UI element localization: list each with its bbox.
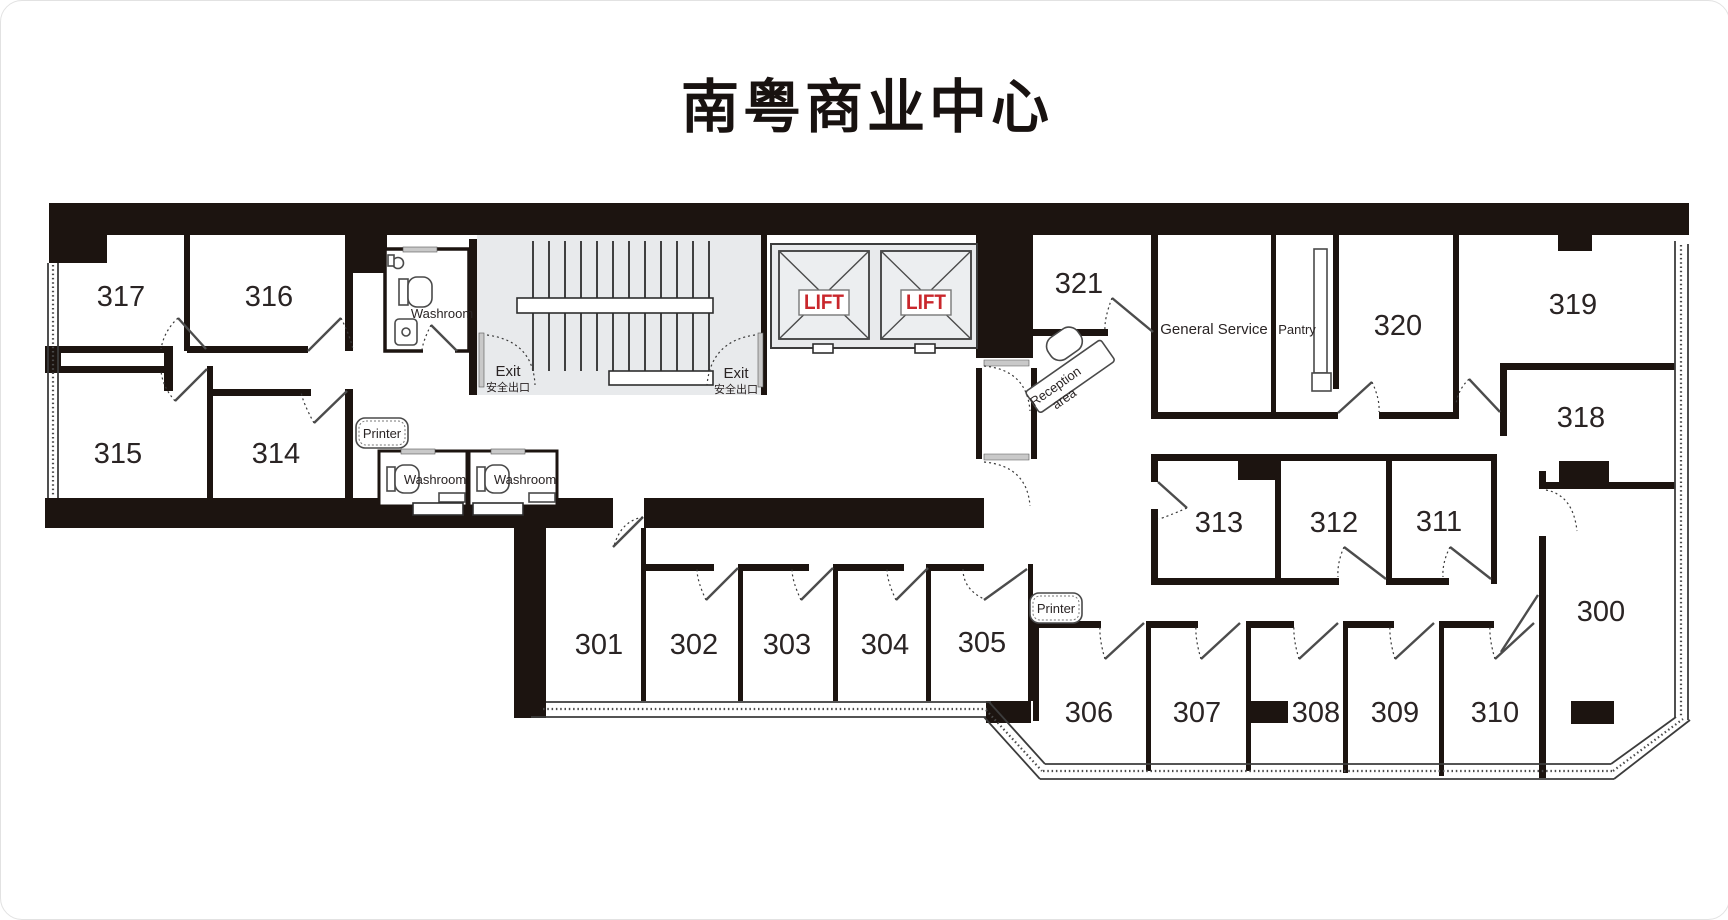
room-label-306: 306 xyxy=(1065,697,1113,729)
exit-left-label-en: Exit xyxy=(495,363,521,380)
room-label-321: 321 xyxy=(1055,268,1103,300)
room-label-310: 310 xyxy=(1471,697,1519,729)
room-label-303: 303 xyxy=(763,629,811,661)
exit-door-left xyxy=(479,333,484,387)
room-label-320: 320 xyxy=(1374,310,1422,342)
room-label-308: 308 xyxy=(1292,697,1340,729)
room-label-311: 311 xyxy=(1416,506,1462,538)
washroom-3-vent xyxy=(473,503,523,515)
room-label-314: 314 xyxy=(252,438,300,470)
floor-plan: 南粤商业中心 317 316 315 314 321 320 319 318 3… xyxy=(1,1,1728,919)
lift-1-sill xyxy=(813,344,833,353)
exit-door-right xyxy=(758,333,763,387)
lift-2-sill xyxy=(915,344,935,353)
room-label-301: 301 xyxy=(575,629,623,661)
washroom-2-vent xyxy=(413,503,463,515)
room-label-302: 302 xyxy=(670,629,718,661)
room-label-313: 313 xyxy=(1195,507,1243,539)
pantry-counter xyxy=(1312,249,1331,391)
washroom-1 xyxy=(385,247,469,355)
room-label-315: 315 xyxy=(94,438,142,470)
room-label-317: 317 xyxy=(97,281,145,313)
room-label-318: 318 xyxy=(1557,402,1605,434)
page-title: 南粤商业中心 xyxy=(681,75,1053,140)
doors xyxy=(161,298,1577,659)
washroom-1-label: Washroom xyxy=(411,306,473,321)
washroom-2-label: Washroom xyxy=(404,472,466,487)
room-label-305: 305 xyxy=(958,627,1006,659)
labels: 南粤商业中心 317 316 315 314 321 320 319 318 3… xyxy=(94,75,1625,729)
pantry-label: Pantry xyxy=(1278,322,1316,337)
washroom-3-label: Washroom xyxy=(494,472,556,487)
printer-1-label: Printer xyxy=(363,426,402,441)
room-label-300: 300 xyxy=(1577,596,1625,628)
floor-plan-page: 南粤商业中心 317 316 315 314 321 320 319 318 3… xyxy=(0,0,1728,920)
exit-left-label-zh: 安全出口 xyxy=(486,380,530,394)
lift-2-label: LIFT xyxy=(906,291,946,314)
general-service-label: General Service xyxy=(1160,321,1268,338)
room-label-316: 316 xyxy=(245,281,293,313)
lift-block xyxy=(771,244,977,353)
room-label-304: 304 xyxy=(861,629,909,661)
printer-2-label: Printer xyxy=(1037,601,1076,616)
room-label-319: 319 xyxy=(1549,289,1597,321)
exit-right-label-en: Exit xyxy=(723,365,749,382)
room-label-309: 309 xyxy=(1371,697,1419,729)
room-label-312: 312 xyxy=(1310,507,1358,539)
exit-right-label-zh: 安全出口 xyxy=(714,382,758,396)
stair-handrail xyxy=(517,298,713,313)
room-label-307: 307 xyxy=(1173,697,1221,729)
lift-1-label: LIFT xyxy=(804,291,844,314)
stair-handrail-lower xyxy=(609,371,713,385)
